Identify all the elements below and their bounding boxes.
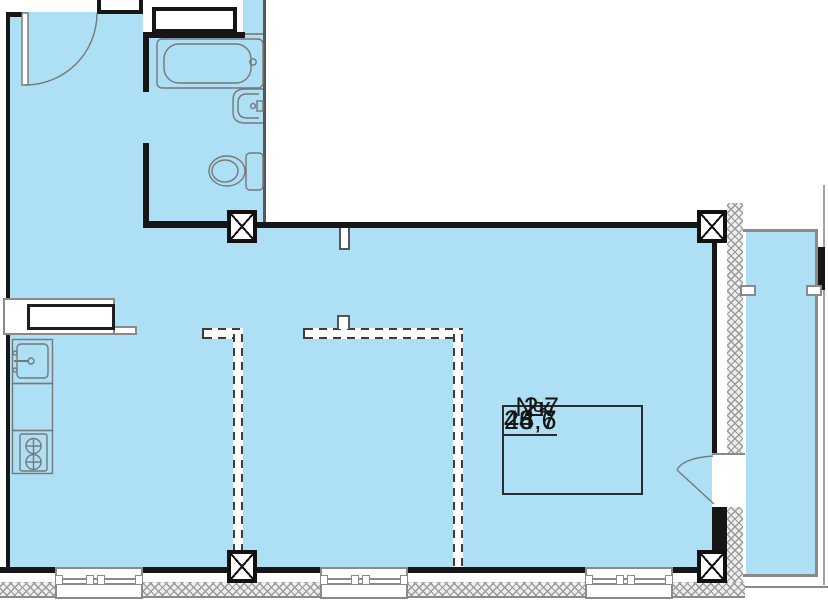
floor-plan: №7 2к 24,6 46,7 48,7 — [0, 0, 828, 604]
toilet-icon — [209, 153, 263, 190]
bathtub-icon — [157, 39, 263, 88]
unit-area-row-3: 48,7 — [504, 407, 557, 434]
entrance-door-icon — [22, 13, 97, 85]
balcony-door-icon — [677, 456, 714, 504]
kitchen-sink-icon — [13, 344, 48, 378]
fixtures-layer — [0, 0, 828, 604]
unit-info-table: №7 2к 24,6 46,7 48,7 — [502, 405, 643, 495]
washbasin-icon — [233, 89, 263, 123]
cooktop-icon — [20, 434, 47, 471]
